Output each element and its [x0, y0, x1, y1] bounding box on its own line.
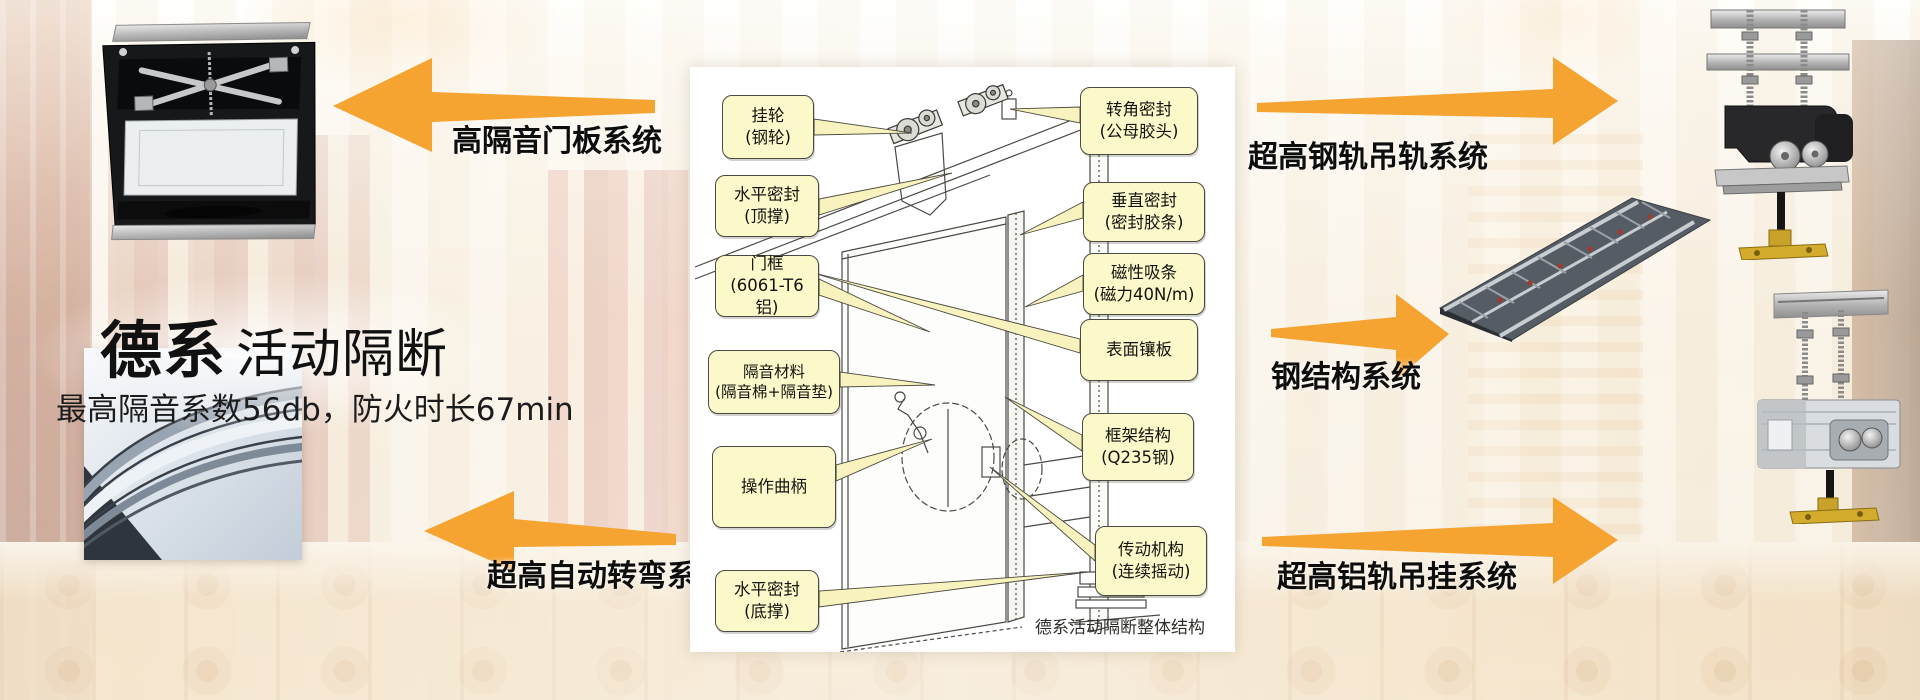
- callout-sound-insulation: 隔音材料 (隔音棉+隔音垫): [708, 350, 840, 414]
- callout-text: 表面镶板: [1106, 339, 1172, 361]
- callout-drive-mechanism: 传动机构 (连续摇动): [1095, 526, 1207, 596]
- callout-subtext: (Q235钢): [1101, 447, 1175, 469]
- callout-subtext: (密封胶条): [1105, 212, 1184, 234]
- callout-text: 门框: [751, 253, 784, 275]
- callout-text: 磁性吸条: [1111, 262, 1177, 284]
- callout-horizontal-seal-top: 水平密封 (顶撑): [715, 175, 819, 237]
- system-label-steel-rail: 超高钢轨吊轨系统: [1248, 132, 1488, 176]
- system-label-alu-rail: 超高铝轨吊挂系统: [1277, 552, 1517, 596]
- callout-horizontal-seal-bottom: 水平密封 (底撑): [715, 570, 819, 632]
- callout-text: 隔音材料: [743, 362, 805, 382]
- callout-text: 水平密封: [734, 184, 800, 206]
- callout-text: 水平密封: [734, 579, 800, 601]
- callout-corner-seal: 转角密封 (公母胶头): [1080, 87, 1198, 155]
- callout-text: 垂直密封: [1111, 190, 1177, 212]
- callout-subtext: (顶撑): [744, 206, 790, 228]
- callout-text: 框架结构: [1105, 425, 1171, 447]
- system-label-steel-structure: 钢结构系统: [1271, 352, 1421, 396]
- callout-subtext: (连续摇动): [1112, 561, 1191, 583]
- callout-subtext: (6061-T6铝): [719, 275, 815, 319]
- callout-door-frame: 门框 (6061-T6铝): [715, 255, 819, 317]
- slide: 德系活动隔断 最高隔音系数56db，防火时长67min 高隔音门板系统 超高自动…: [0, 0, 1920, 700]
- callout-vertical-seal: 垂直密封 (密封胶条): [1083, 182, 1205, 242]
- callout-operating-crank: 操作曲柄: [712, 446, 836, 528]
- callout-subtext: (磁力40N/m): [1094, 284, 1195, 306]
- system-label-door-panel: 高隔音门板系统: [452, 116, 662, 160]
- callout-magnetic-strip: 磁性吸条 (磁力40N/m): [1083, 253, 1205, 315]
- callout-frame-structure: 框架结构 (Q235钢): [1082, 413, 1194, 481]
- callout-subtext: (底撑): [744, 601, 790, 623]
- callout-text: 传动机构: [1118, 539, 1184, 561]
- callout-subtext: (钢轮): [745, 127, 791, 149]
- callout-text: 挂轮: [752, 105, 785, 127]
- callout-text: 操作曲柄: [741, 476, 807, 498]
- callout-subtext: (隔音棉+隔音垫): [715, 382, 833, 402]
- callout-subtext: (公母胶头): [1100, 121, 1179, 143]
- callout-surface-panel: 表面镶板: [1080, 319, 1198, 381]
- callout-text: 转角密封: [1106, 99, 1172, 121]
- trolleys: [887, 82, 1010, 146]
- callout-hanging-wheel: 挂轮 (钢轮): [722, 95, 814, 159]
- diagram-caption: 德系活动隔断整体结构: [1020, 613, 1220, 638]
- structure-diagram-panel: 挂轮 (钢轮) 水平密封 (顶撑) 门框 (6061-T6铝) 隔音材料 (隔音…: [690, 67, 1235, 652]
